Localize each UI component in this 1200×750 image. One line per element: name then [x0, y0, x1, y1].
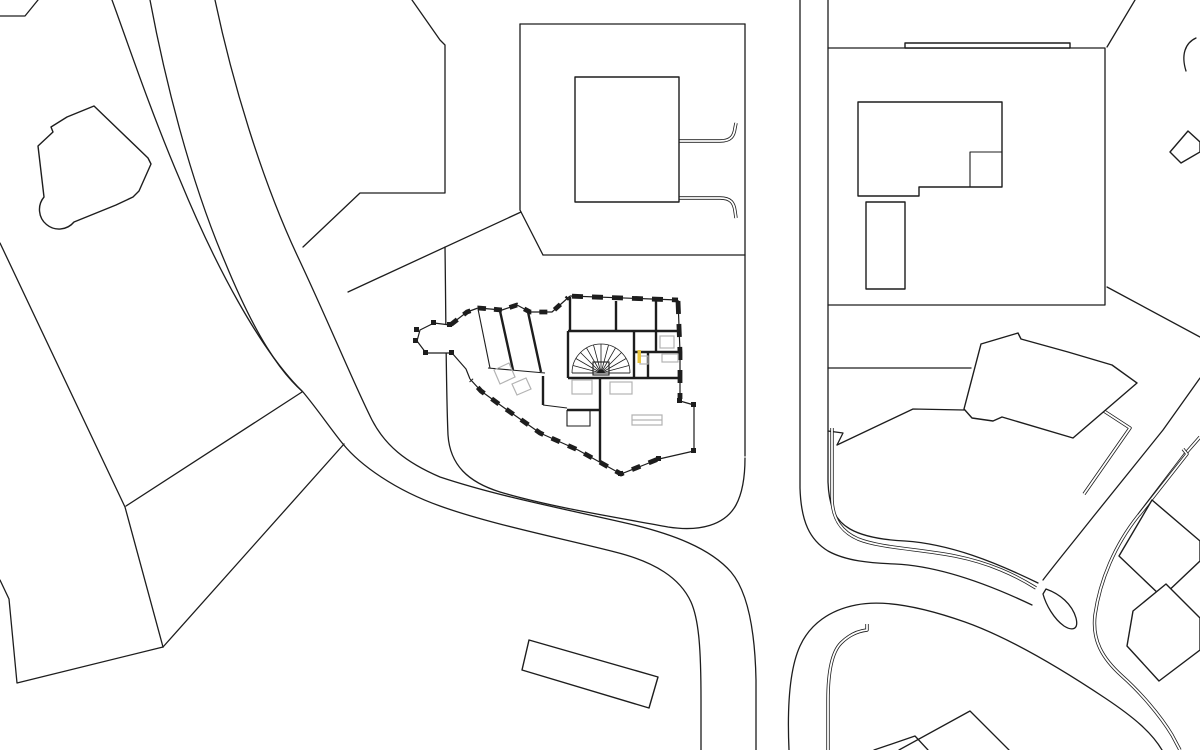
loop-road-inner-curb	[828, 624, 867, 750]
west-road-strip-line	[112, 0, 302, 391]
north-parcel-west-edge	[303, 0, 445, 247]
east-edge-arc	[1184, 38, 1196, 71]
east-edge-angled-piece	[1170, 131, 1200, 163]
boundary-to-road-junction	[126, 392, 302, 506]
top-right-wall-bar	[905, 43, 1070, 48]
top-right-l-building	[858, 102, 1002, 196]
top-right-corner-diagonal	[1107, 0, 1135, 47]
floor-plan-envelope	[417, 296, 694, 474]
topcenter-parcel-west	[520, 24, 543, 255]
east-parcel-diagonal	[1107, 287, 1200, 337]
vertical-road-east-edge	[828, 0, 1038, 583]
driveway-upper	[679, 123, 736, 141]
center-parcel-northwest-diagonal	[348, 212, 521, 292]
east-angled-building	[964, 333, 1137, 438]
diagonal-road-east-curb	[1094, 437, 1200, 750]
site-plan-drawing	[0, 0, 1200, 750]
yellow-door-marker	[638, 350, 642, 363]
east-cluster-building-2	[1127, 584, 1200, 681]
bottom-roof-peak-large	[899, 711, 1009, 750]
loop-road-outer-edge	[788, 603, 1162, 750]
top-right-annex	[866, 202, 905, 289]
top-left-house	[38, 106, 151, 229]
site-plan-page	[0, 0, 1200, 750]
southwest-corner-boundary	[0, 580, 163, 683]
detailed-floor-plan	[413, 296, 696, 476]
boundary-diagonal-southwest	[163, 444, 344, 647]
curb-lines	[679, 123, 1200, 750]
bottom-center-building	[522, 640, 658, 708]
corner-boundary-topleft	[0, 0, 38, 16]
top-center-square-building	[575, 77, 679, 202]
traffic-island	[1043, 589, 1077, 629]
west-parcel-boundary	[0, 243, 163, 647]
driveway-lower	[679, 198, 736, 218]
east-parcel-line-lower	[837, 409, 964, 445]
corner-curb-south	[832, 428, 1036, 588]
east-cluster-building-1	[1119, 500, 1200, 597]
